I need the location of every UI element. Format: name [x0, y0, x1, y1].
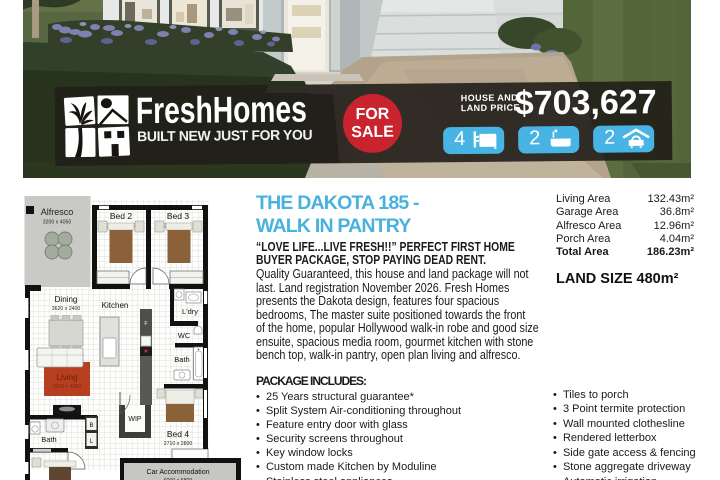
svg-text:3200 x 4050: 3200 x 4050 — [43, 220, 72, 226]
svg-text:Car Accommodation: Car Accommodation — [146, 469, 209, 476]
svg-text:Kitchen: Kitchen — [102, 301, 129, 310]
svg-text:Bed 4: Bed 4 — [167, 429, 189, 439]
svg-text:Living: Living — [57, 373, 78, 382]
svg-text:2710 x 2800: 2710 x 2800 — [164, 441, 193, 447]
svg-text:Dining: Dining — [55, 295, 78, 304]
svg-text:L'dry: L'dry — [182, 307, 198, 316]
svg-text:3600 x 4050: 3600 x 4050 — [53, 384, 82, 390]
svg-text:WIP: WIP — [128, 416, 142, 423]
svg-text:WC: WC — [178, 331, 191, 340]
svg-text:FreshHomes: FreshHomes — [136, 88, 307, 130]
svg-text:B: B — [89, 423, 93, 429]
svg-text:Bed 2: Bed 2 — [110, 211, 132, 221]
svg-text:Alfresco: Alfresco — [41, 207, 74, 217]
svg-text:3620 x 2400: 3620 x 2400 — [52, 306, 81, 312]
svg-text:Bath: Bath — [174, 355, 189, 364]
svg-text:Bath: Bath — [41, 435, 56, 444]
svg-text:Bed 3: Bed 3 — [167, 211, 189, 221]
